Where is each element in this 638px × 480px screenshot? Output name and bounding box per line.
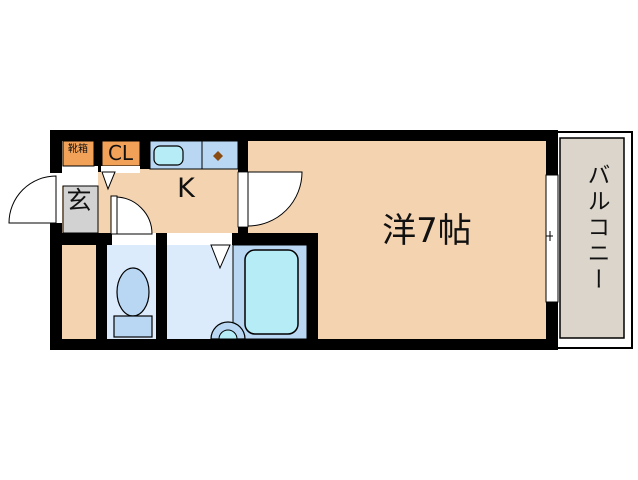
entrance-step <box>62 166 98 186</box>
shoe-box <box>63 141 94 166</box>
toilet-opening <box>112 233 156 245</box>
balcony-floor <box>560 138 624 338</box>
toilet-bowl <box>117 268 149 316</box>
balcony-window <box>546 175 558 302</box>
entrance-floor <box>63 186 98 233</box>
bath-opening <box>167 233 232 245</box>
closet-box <box>102 141 140 166</box>
toilet-door-leaf <box>111 196 117 234</box>
floor-plan: 靴箱 CL K 玄 洋7帖 バルコニー <box>0 0 638 480</box>
entrance-door-swing <box>9 176 56 223</box>
kitchen-room-door-leaf <box>238 172 248 227</box>
bathtub <box>245 250 298 334</box>
sink-icon <box>154 146 183 165</box>
floor-plan-drawing <box>0 0 638 480</box>
toilet-tank <box>114 316 152 337</box>
